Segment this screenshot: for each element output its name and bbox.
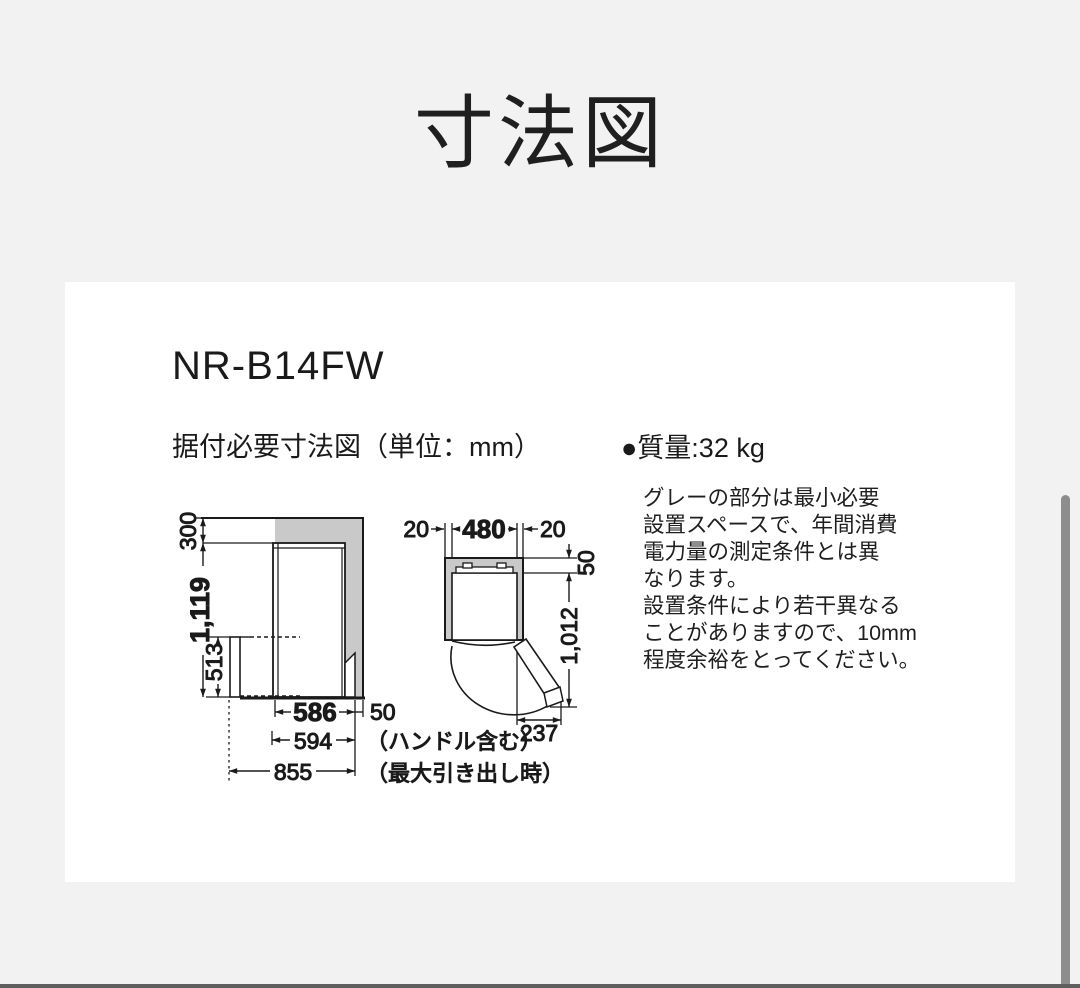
dimension-card: NR-B14FW 据付必要寸法図（単位：mm） ●質量:32 kg グレーの部分…: [65, 282, 1015, 882]
dim-door-swing: 237: [520, 720, 558, 746]
dim-back-clearance: 50: [573, 550, 599, 576]
top-view: 20 480 20 237: [403, 514, 599, 746]
scrollbar-thumb[interactable]: [1061, 495, 1070, 988]
handle-note: （ハンドル含む）: [366, 729, 542, 754]
drawer-front: [230, 637, 240, 697]
dim-depth-with-handle: 594: [294, 728, 333, 754]
diagram-subtitle: 据付必要寸法図（単位：mm）: [172, 425, 541, 464]
dim-left-clearance: 20: [403, 516, 429, 542]
dim-top-clearance: 300: [175, 512, 201, 550]
page-title: 寸法図: [0, 94, 1080, 174]
dim-drawer-height: 513: [201, 643, 227, 681]
dim-height: 1,119: [185, 577, 215, 643]
mass-label: ●質量:32 kg: [621, 426, 765, 465]
door-front-curve: [452, 641, 515, 645]
dim-depth: 586: [293, 697, 336, 727]
model-number: NR-B14FW: [172, 344, 384, 389]
dim-right-clearance: 20: [540, 516, 566, 542]
side-view: 300 1,119 513 586 50 594: [175, 512, 564, 786]
dim-depth-door-open: 1,012: [556, 607, 582, 665]
dim-width: 480: [462, 514, 505, 544]
dimension-diagram: 300 1,119 513 586 50 594: [160, 480, 620, 795]
hinge-notch-right: [497, 563, 506, 568]
fridge-side-outline: [273, 543, 345, 697]
fridge-top-outline: [452, 573, 517, 640]
dim-rear-clearance: 50: [370, 699, 396, 725]
installation-note: グレーの部分は最小必要 設置スペースで、年間消費 電力量の測定条件とは異 なりま…: [643, 485, 973, 674]
hinge-notch-left: [463, 563, 472, 568]
min-space-top-band: [275, 518, 363, 543]
pullout-note: （最大引き出し時）: [366, 761, 564, 786]
viewport-bottom-edge: [0, 984, 1080, 988]
dim-max-pullout: 855: [274, 759, 312, 785]
